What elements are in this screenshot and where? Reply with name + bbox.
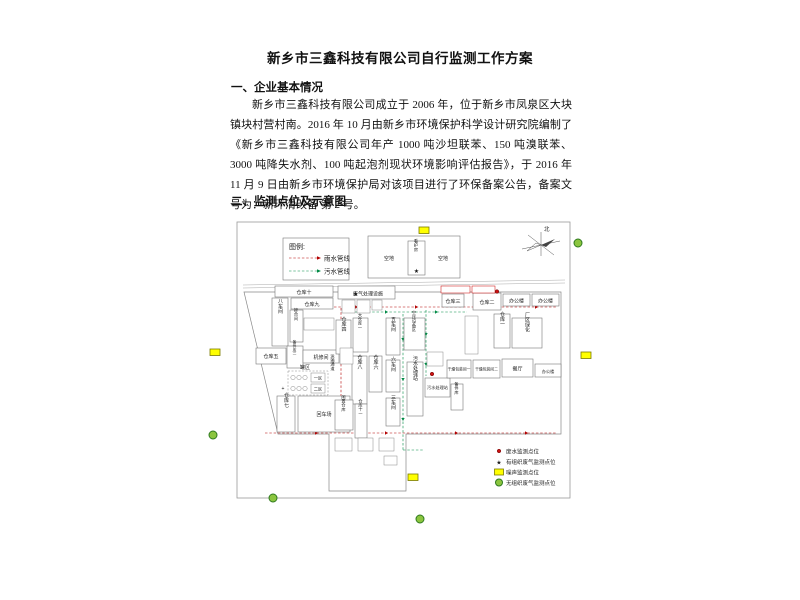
building-label: 仓库三 xyxy=(445,298,460,305)
guard-house-label: 看护房 xyxy=(414,237,419,252)
building: 污水处理站 xyxy=(407,355,423,416)
north-arrow-tail-icon xyxy=(527,243,541,251)
building-label: 五车间 xyxy=(390,317,396,333)
open-area-left-label: 空地 xyxy=(384,255,394,262)
building-label: 仓库一 xyxy=(499,311,505,327)
building-label: 闲置仓库 xyxy=(341,393,347,413)
outfall-annotation-box xyxy=(441,286,470,293)
site-plan-figure: 图例: 雨水管线 污水管线 空地 看护房 ★ 空地 北 xyxy=(205,218,600,530)
building: 干燥包装间二 xyxy=(473,360,500,378)
page-title: 新乡市三鑫科技有限公司自行监测工作方案 xyxy=(0,47,800,67)
pipe-arrow xyxy=(401,378,404,381)
tank-area: 罐区 一区 二区 + xyxy=(282,364,328,395)
organized-gas-point-icon: ★ xyxy=(414,268,419,275)
unorganized-gas-point-icon xyxy=(416,515,424,523)
tank-icon xyxy=(297,386,301,390)
point-legend-label: 噪声监测点位 xyxy=(506,469,540,477)
building: 仓库八 xyxy=(352,354,367,404)
north-label: 北 xyxy=(544,225,550,233)
unorganized-gas-point-icon xyxy=(574,239,582,247)
tank-zone-label: 一区 xyxy=(314,376,322,381)
small-building-box xyxy=(427,352,443,366)
tank-icon xyxy=(297,375,301,379)
point-legend: 废水监测点位 ★ 有组织废气监测点位 噪声监测点位 无组织废气监测点位 xyxy=(495,448,557,488)
building: 三车间 xyxy=(386,395,400,427)
pipe-arrow xyxy=(435,310,438,313)
building: 干燥包装间一 xyxy=(447,360,471,378)
pipe-arrow xyxy=(401,418,404,421)
small-building-box xyxy=(335,438,352,451)
wastewater-point-icon xyxy=(430,372,434,376)
corridor-label: 运输通道 xyxy=(330,352,336,372)
building-label: 办公楼 xyxy=(542,368,555,375)
tank-icon xyxy=(291,375,295,379)
tank-area-label: 罐区 xyxy=(300,364,310,371)
building-label: 办公楼 xyxy=(509,298,524,305)
small-building-box xyxy=(357,300,370,313)
wastewater-point-icon xyxy=(495,290,499,294)
building-label: 机修间 xyxy=(313,354,328,361)
building: 废气处理设施★ xyxy=(338,286,395,299)
building: 办公楼 xyxy=(532,294,559,306)
pipe-arrow xyxy=(385,431,388,434)
section-heading-1: 一、企业基本情况 xyxy=(231,79,323,95)
small-building-box xyxy=(358,438,373,451)
small-building-box xyxy=(379,438,394,451)
wastewater-point-icon xyxy=(497,449,501,453)
building: 办公楼 xyxy=(535,364,561,377)
building-label: 仓库八 xyxy=(357,354,363,370)
small-building-box xyxy=(372,300,382,310)
building: 办公楼 xyxy=(503,294,530,306)
small-building-box xyxy=(340,348,353,364)
building-label: 三车间 xyxy=(390,395,396,411)
building-label: 空压设备区 xyxy=(411,309,417,332)
building: 仓库一 xyxy=(494,311,510,348)
building-label: 备件库 xyxy=(454,380,460,395)
building-label: 仓库十一 xyxy=(358,397,364,415)
noise-point-icon xyxy=(419,227,429,234)
north-arrow-icon xyxy=(541,239,555,247)
building-label: 干燥包装间二 xyxy=(475,367,498,372)
pipe-legend: 图例: 雨水管线 污水管线 xyxy=(283,238,351,280)
building: 八车间 xyxy=(272,298,288,346)
organized-gas-point-icon: ★ xyxy=(496,460,501,467)
small-building-box xyxy=(465,316,478,354)
point-legend-label: 废水监测点位 xyxy=(506,448,540,456)
building-label: 掺合间 xyxy=(293,306,299,321)
document-page: { "doc": { "title": "新乡市三鑫科技有限公司自行监测工作方案… xyxy=(0,0,800,600)
tank-icon xyxy=(291,386,295,390)
building-label: 大仓库一 xyxy=(357,311,363,329)
building-label: 备件库二 xyxy=(292,340,297,356)
building: 仓库七 xyxy=(277,392,295,432)
building-label: 办公楼 xyxy=(538,298,553,305)
building-label: 六车间 xyxy=(390,356,396,373)
building-label: 仓库九 xyxy=(304,301,319,308)
building-label: 污水处理站 xyxy=(427,384,448,391)
organized-gas-point-icon: ★ xyxy=(353,291,358,298)
open-area-right-label: 空地 xyxy=(438,255,448,262)
building: 五车间 xyxy=(386,317,400,356)
small-building-box xyxy=(342,300,355,313)
building: 仓库十 xyxy=(275,286,333,297)
building: 六车间 xyxy=(386,356,400,392)
unorganized-gas-point-icon xyxy=(269,494,277,502)
pipe-legend-title: 图例: xyxy=(289,242,305,251)
building: 餐厅 xyxy=(502,359,533,377)
building-label: 仓库六 xyxy=(373,354,379,371)
outfall-annotation-box xyxy=(472,286,495,293)
building: 仓库五 xyxy=(256,348,286,364)
building-label: 仓库五 xyxy=(263,353,278,360)
tank-icon xyxy=(303,386,307,390)
building-label: 仓库二 xyxy=(479,299,494,306)
north-compass: 北 xyxy=(522,225,560,256)
building: 备件库二 xyxy=(287,340,303,368)
building-label: 仓库七 xyxy=(283,392,289,408)
section-heading-2: 二、监测点位及示意图 xyxy=(231,193,346,209)
tank-icon xyxy=(303,375,307,379)
pipe-arrow xyxy=(385,310,388,313)
pipe-arrow xyxy=(415,305,418,308)
noise-point-icon xyxy=(495,469,504,475)
building-label: 污水处理站 xyxy=(412,355,418,382)
point-legend-label: 有组织废气监测点位 xyxy=(506,458,556,466)
point-legend-label: 无组织废气监测点位 xyxy=(506,479,556,487)
unorganized-gas-point-icon xyxy=(209,431,217,439)
building: 大仓库一 xyxy=(353,311,368,352)
building: 污水处理站 xyxy=(425,378,450,397)
building: 仓库三 xyxy=(442,294,464,307)
building-label: 仓库四 xyxy=(341,316,347,332)
plus-mark: + xyxy=(282,386,285,392)
building: 空压设备区 xyxy=(404,309,425,350)
building: 仓库二 xyxy=(473,293,501,310)
unorganized-gas-point-icon xyxy=(496,479,503,486)
road-line xyxy=(243,280,565,285)
rain-pipe-label: 雨水管线 xyxy=(324,254,351,263)
small-building-box xyxy=(384,456,397,465)
building-label: 八车间 xyxy=(277,299,283,315)
sewage-pipe-label: 污水管线 xyxy=(324,267,351,276)
building-label: 干燥包装间一 xyxy=(448,367,471,372)
building: 备件库 xyxy=(451,380,463,410)
noise-point-icon xyxy=(210,349,220,356)
small-building-box xyxy=(304,318,334,330)
building-label: 回车场 xyxy=(316,411,331,418)
tank-zone-label: 二区 xyxy=(314,387,322,392)
noise-point-icon xyxy=(408,474,418,481)
building-label: 厂区绿化 xyxy=(524,312,530,333)
noise-point-icon xyxy=(581,352,591,359)
open-area-block: 空地 看护房 ★ 空地 xyxy=(368,236,460,278)
building: 厂区绿化 xyxy=(512,312,542,348)
building-label: 仓库十 xyxy=(296,289,311,296)
building-label: 餐厅 xyxy=(512,366,522,373)
building: 仓库六 xyxy=(369,354,382,392)
building: 掺合间 xyxy=(290,306,303,342)
